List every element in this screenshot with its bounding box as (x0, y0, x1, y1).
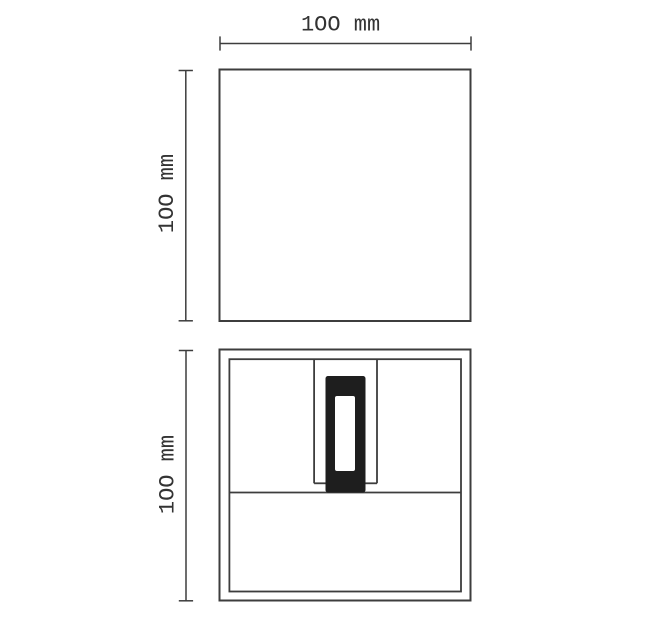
svg-text:1OO mm: 1OO mm (155, 154, 180, 233)
svg-text:1OO mm: 1OO mm (301, 13, 380, 38)
svg-text:1OO mm: 1OO mm (156, 435, 181, 514)
